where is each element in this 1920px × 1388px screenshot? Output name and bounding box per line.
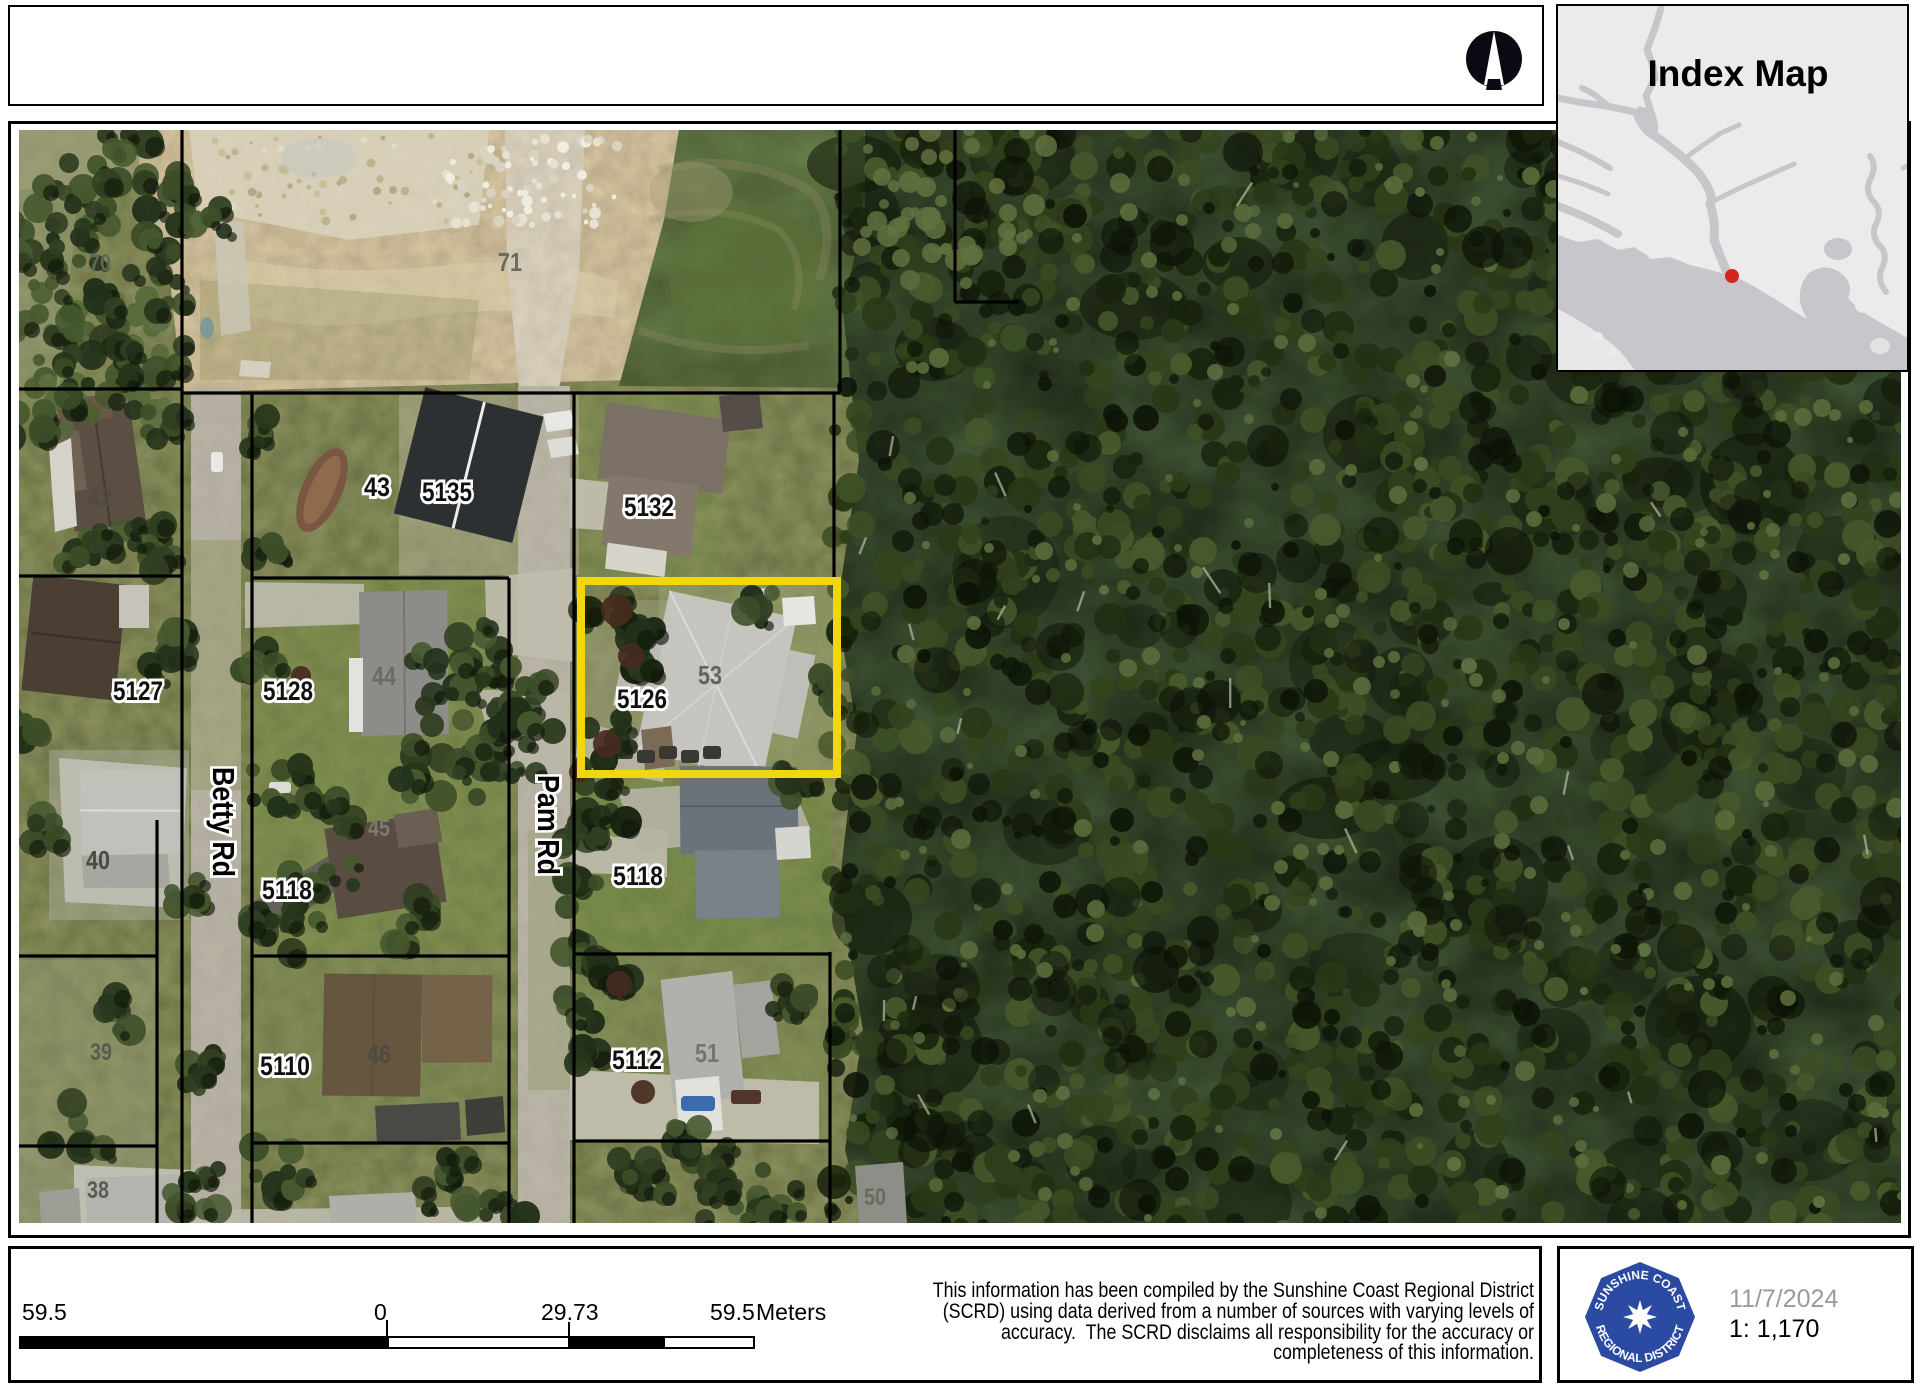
svg-text:Index Map: Index Map — [1648, 53, 1829, 94]
